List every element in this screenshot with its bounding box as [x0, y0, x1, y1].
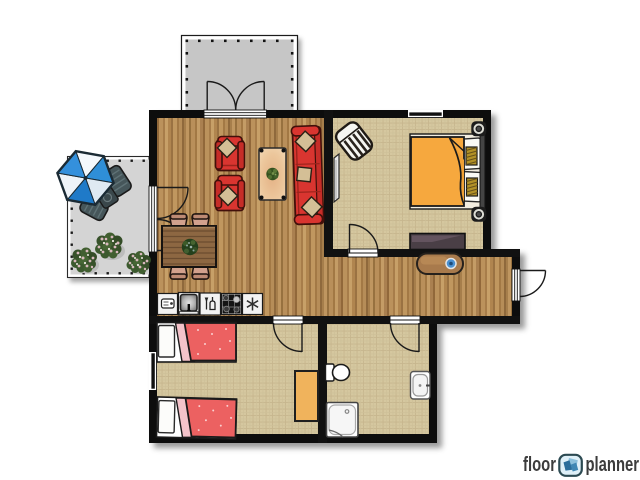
svg-text:floor: floor — [523, 453, 556, 476]
svg-text:planner: planner — [586, 453, 640, 476]
